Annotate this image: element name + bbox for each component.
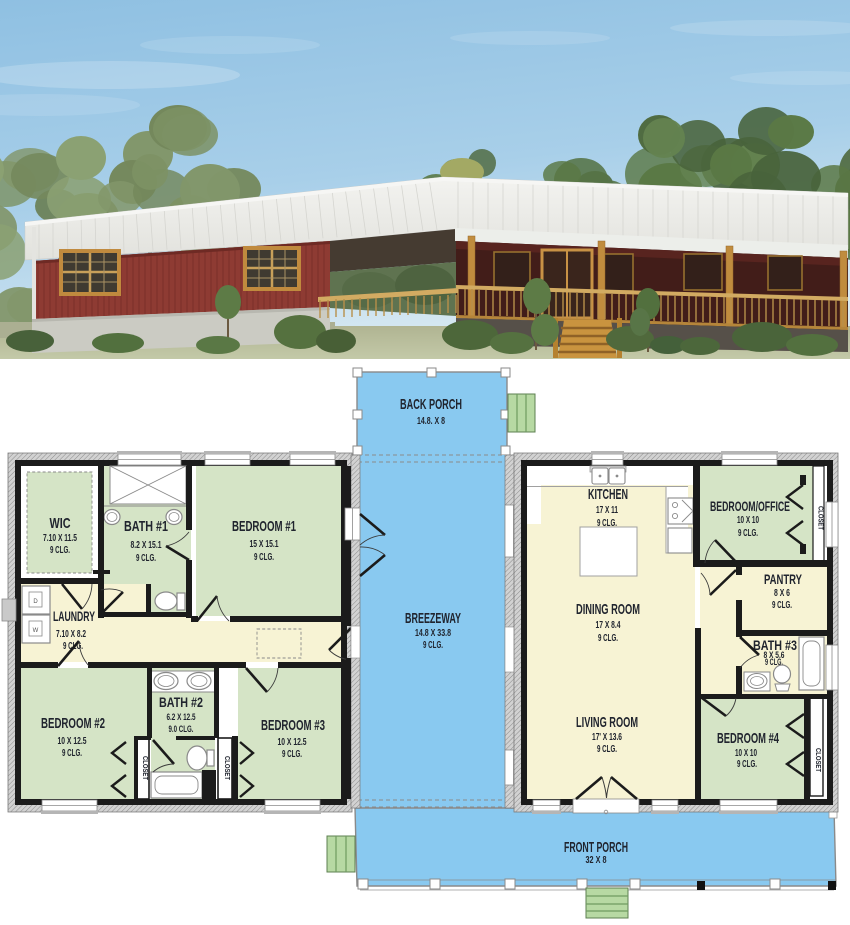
svg-text:15 X 15.1: 15 X 15.1 <box>250 539 279 550</box>
svg-text:BACK PORCH: BACK PORCH <box>400 397 462 413</box>
svg-text:BATH #2: BATH #2 <box>159 695 203 710</box>
svg-text:10 X 12.5: 10 X 12.5 <box>58 736 87 747</box>
svg-text:CLOSET: CLOSET <box>817 506 825 531</box>
svg-text:WIC: WIC <box>50 516 71 532</box>
svg-text:9 CLG.: 9 CLG. <box>62 748 82 759</box>
svg-text:6.2 X 12.5: 6.2 X 12.5 <box>167 711 196 722</box>
svg-text:9 CLG.: 9 CLG. <box>598 633 618 644</box>
svg-text:9.0 CLG.: 9.0 CLG. <box>169 723 194 734</box>
svg-text:9 CLG.: 9 CLG. <box>423 640 443 651</box>
svg-text:CLOSET: CLOSET <box>141 756 149 781</box>
svg-text:7.10 X 11.5: 7.10 X 11.5 <box>43 533 77 544</box>
svg-text:LAUNDRY: LAUNDRY <box>53 609 95 624</box>
svg-text:9 CLG.: 9 CLG. <box>738 528 758 539</box>
svg-text:32 X 8: 32 X 8 <box>586 855 607 866</box>
svg-text:BEDROOM #3: BEDROOM #3 <box>261 718 325 734</box>
svg-text:10 X 10: 10 X 10 <box>735 748 757 759</box>
svg-text:9 CLG.: 9 CLG. <box>737 759 757 770</box>
svg-text:7.10 X 8.2: 7.10 X 8.2 <box>56 629 86 640</box>
svg-text:CLOSET: CLOSET <box>223 756 231 781</box>
svg-text:DINING ROOM: DINING ROOM <box>576 602 640 618</box>
svg-text:14.8. X 8: 14.8. X 8 <box>417 416 445 427</box>
svg-text:9 CLG.: 9 CLG. <box>597 744 617 755</box>
svg-text:8 X 6: 8 X 6 <box>774 588 790 599</box>
svg-text:BEDROOM #4: BEDROOM #4 <box>717 731 779 747</box>
svg-text:W: W <box>33 628 39 634</box>
svg-text:9 CLG.: 9 CLG. <box>50 545 70 556</box>
svg-text:14.8 X 33.8: 14.8 X 33.8 <box>415 628 451 639</box>
svg-text:10 X 10: 10 X 10 <box>737 515 759 526</box>
svg-text:PANTRY: PANTRY <box>764 572 802 587</box>
svg-text:BREEZEWAY: BREEZEWAY <box>405 611 461 627</box>
svg-text:FRONT PORCH: FRONT PORCH <box>564 840 628 856</box>
svg-text:BATH #1: BATH #1 <box>124 519 168 535</box>
svg-text:9 CLG.: 9 CLG. <box>282 749 302 760</box>
svg-text:10 X 12.5: 10 X 12.5 <box>278 737 307 748</box>
svg-text:BEDROOM/OFFICE: BEDROOM/OFFICE <box>710 499 790 514</box>
svg-text:BEDROOM #1: BEDROOM #1 <box>232 519 296 535</box>
svg-text:17' X 13.6: 17' X 13.6 <box>592 732 622 743</box>
svg-text:CLOSET: CLOSET <box>814 748 822 773</box>
svg-text:8.2 X 15.1: 8.2 X 15.1 <box>131 540 162 551</box>
svg-text:9 CLG.: 9 CLG. <box>772 600 792 611</box>
svg-text:17 X 8.4: 17 X 8.4 <box>596 620 621 631</box>
svg-text:KITCHEN: KITCHEN <box>588 487 628 503</box>
svg-text:17 X 11: 17 X 11 <box>596 505 618 516</box>
svg-text:9 CLG.: 9 CLG. <box>254 552 274 563</box>
svg-text:BEDROOM #2: BEDROOM #2 <box>41 716 105 732</box>
svg-text:LIVING ROOM: LIVING ROOM <box>576 715 638 731</box>
svg-text:9 CLG.: 9 CLG. <box>136 553 156 564</box>
svg-text:D: D <box>33 599 38 605</box>
